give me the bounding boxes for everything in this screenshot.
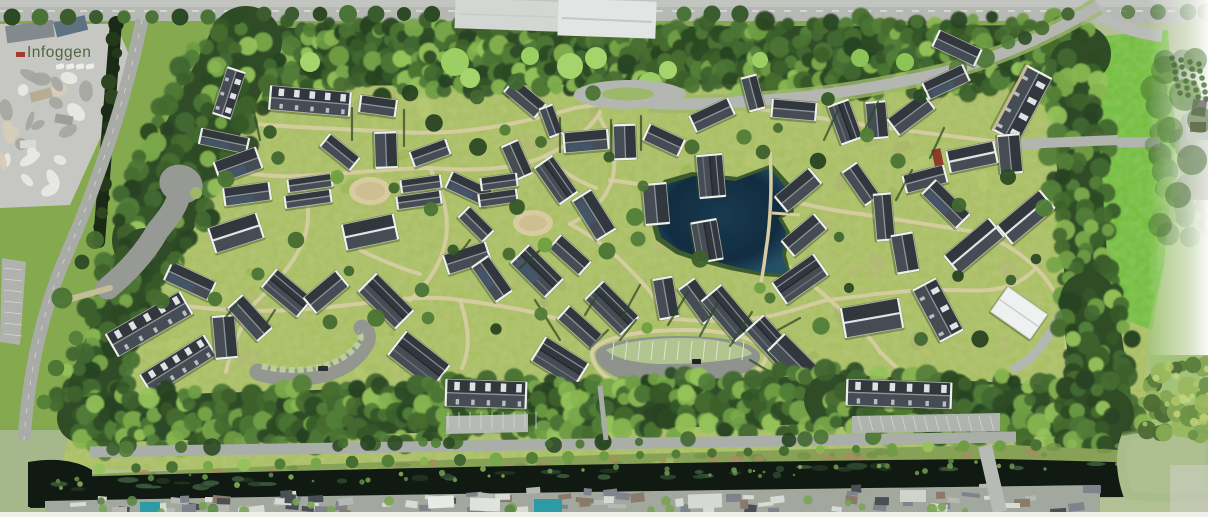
svg-text:Infoggen: Infoggen xyxy=(27,44,91,61)
